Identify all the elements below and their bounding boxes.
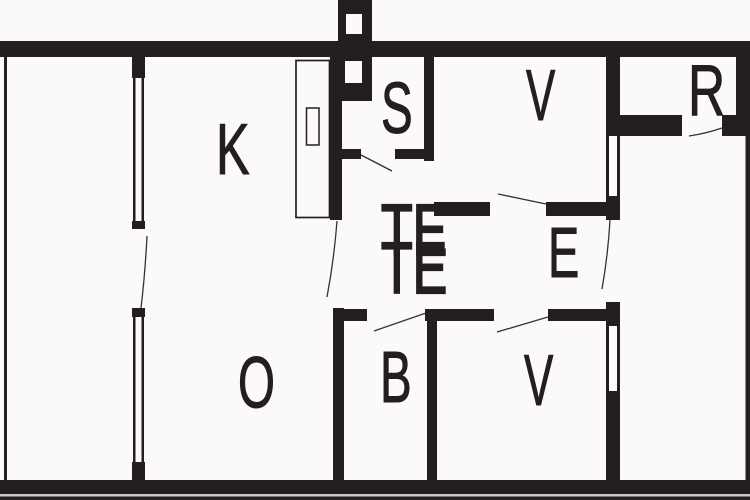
svg-text:K: K bbox=[216, 110, 250, 190]
svg-text:R: R bbox=[688, 51, 725, 132]
svg-text:E: E bbox=[548, 213, 579, 292]
svg-text:S: S bbox=[381, 68, 413, 148]
svg-text:O: O bbox=[238, 343, 275, 423]
svg-text:V: V bbox=[526, 55, 555, 136]
svg-text:TE: TE bbox=[381, 229, 447, 309]
svg-text:B: B bbox=[380, 337, 412, 417]
svg-text:V: V bbox=[524, 340, 553, 421]
